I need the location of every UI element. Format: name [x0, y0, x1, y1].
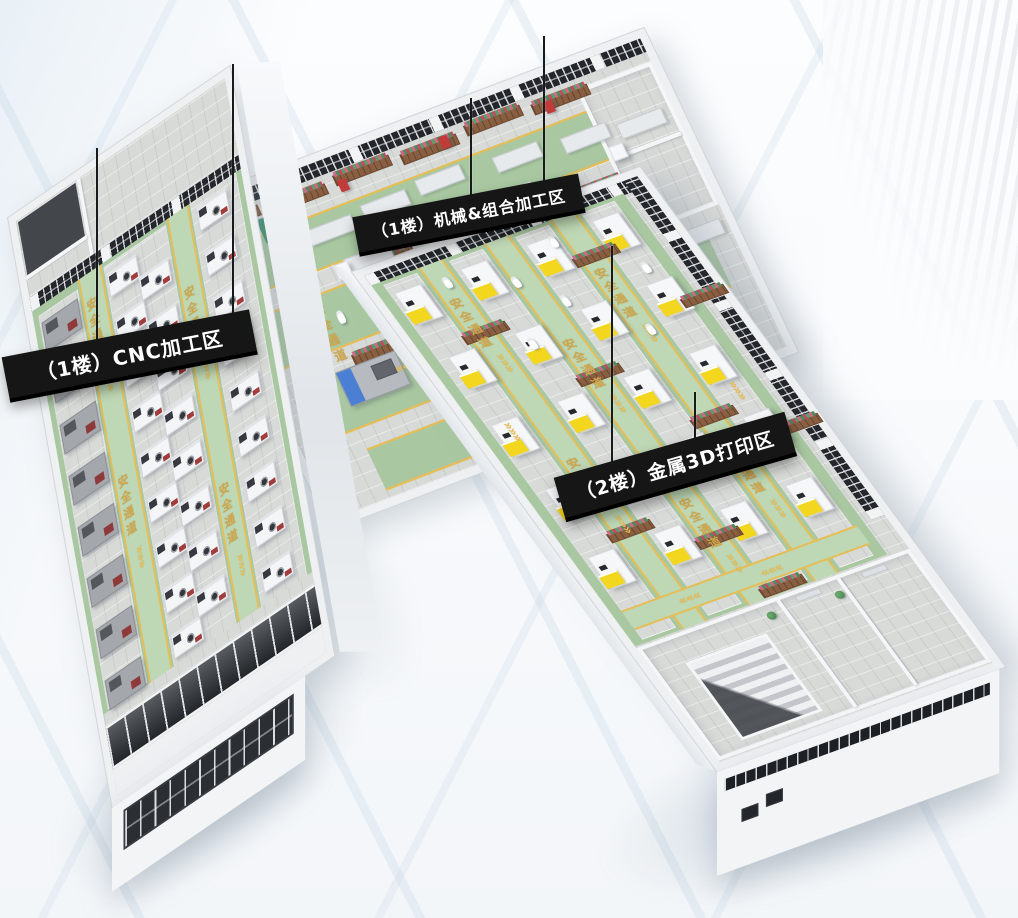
background-tower-stripes — [823, 0, 1018, 400]
factory-3d-layout: 安全通道安全通道安全通道安全通道«««««««««««« 安全通道安全通道安全通… — [0, 0, 1018, 918]
banner-pole — [96, 148, 98, 340]
banner-pole — [232, 64, 234, 340]
door — [860, 564, 889, 579]
stairs — [685, 633, 822, 740]
facade-window — [741, 803, 758, 822]
facade-window — [766, 788, 783, 807]
room-partition-wall — [836, 578, 918, 686]
door — [794, 588, 823, 603]
banner-pole — [611, 246, 613, 474]
potted-plant — [765, 610, 779, 620]
